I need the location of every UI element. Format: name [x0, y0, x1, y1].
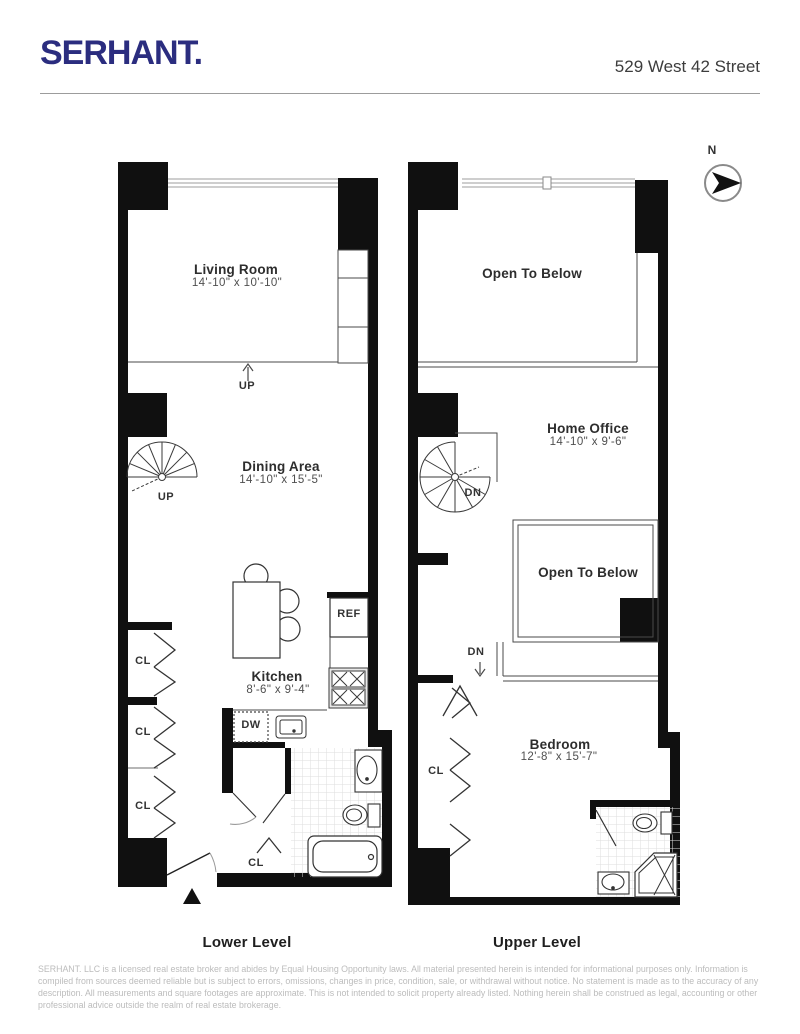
closet-label-1: CL	[135, 655, 151, 667]
room-label-bedroom: Bedroom	[530, 737, 591, 752]
dishwasher-label: DW	[241, 719, 260, 731]
floorplan-page: SERHANT. 529 West 42 Street N	[0, 0, 800, 1034]
upper-level-caption: Upper Level	[493, 934, 581, 951]
closet-label-bedroom: CL	[428, 765, 444, 777]
serhant-logo: SERHANT.	[40, 34, 202, 73]
window	[168, 179, 338, 187]
spiral-staircase-icon	[127, 442, 197, 491]
up-step-label: UP	[239, 380, 255, 392]
dining-table	[233, 564, 300, 658]
room-dims-living: 14'-10" x 10'-10"	[192, 277, 282, 289]
entry-arrow-icon	[183, 888, 201, 904]
open-to-below-top-label: Open To Below	[482, 266, 582, 281]
room-dims-bedroom: 12'-8" x 15'-7"	[521, 751, 598, 763]
door-leaf	[230, 793, 285, 824]
header-divider	[40, 93, 760, 94]
closet-label-2: CL	[135, 726, 151, 738]
north-label: N	[708, 143, 717, 157]
up-arrow-icon	[243, 364, 253, 381]
dn-stairs-label: DN	[465, 487, 482, 499]
room-dims-office: 14'-10" x 9'-6"	[550, 436, 627, 448]
dn-walk-label: DN	[468, 646, 485, 658]
room-dims-kitchen: 8'-6" x 9'-4"	[246, 684, 309, 696]
north-arrow-icon	[695, 158, 753, 210]
stove-icon	[329, 668, 368, 708]
spiral-staircase-icon	[420, 433, 497, 512]
toilet	[343, 804, 380, 827]
lower-level-caption: Lower Level	[203, 934, 292, 951]
window-mullion	[543, 177, 551, 189]
up-stairs-label: UP	[158, 491, 174, 503]
down-arrow-icon	[475, 662, 485, 676]
room-label-living: Living Room	[194, 262, 278, 277]
property-address: 529 West 42 Street	[615, 57, 760, 77]
bathroom-sink	[598, 872, 629, 894]
room-label-kitchen: Kitchen	[252, 669, 303, 684]
shelf-unit	[338, 250, 368, 363]
closet-doors	[450, 688, 470, 856]
open-to-below-mid-label: Open To Below	[538, 565, 638, 580]
bathtub	[308, 836, 382, 877]
closet-label-3: CL	[135, 800, 151, 812]
room-dims-dining: 14'-10" x 15'-5"	[239, 474, 323, 486]
bathroom-sink	[355, 750, 382, 792]
closet-label-4: CL	[248, 857, 264, 869]
entry-door	[167, 853, 216, 875]
room-label-office: Home Office	[547, 421, 629, 436]
room-label-dining: Dining Area	[242, 459, 319, 474]
legal-disclaimer: SERHANT. LLC is a licensed real estate b…	[38, 964, 768, 1012]
kitchen-sink	[276, 716, 306, 738]
refrigerator-label: REF	[337, 608, 361, 620]
